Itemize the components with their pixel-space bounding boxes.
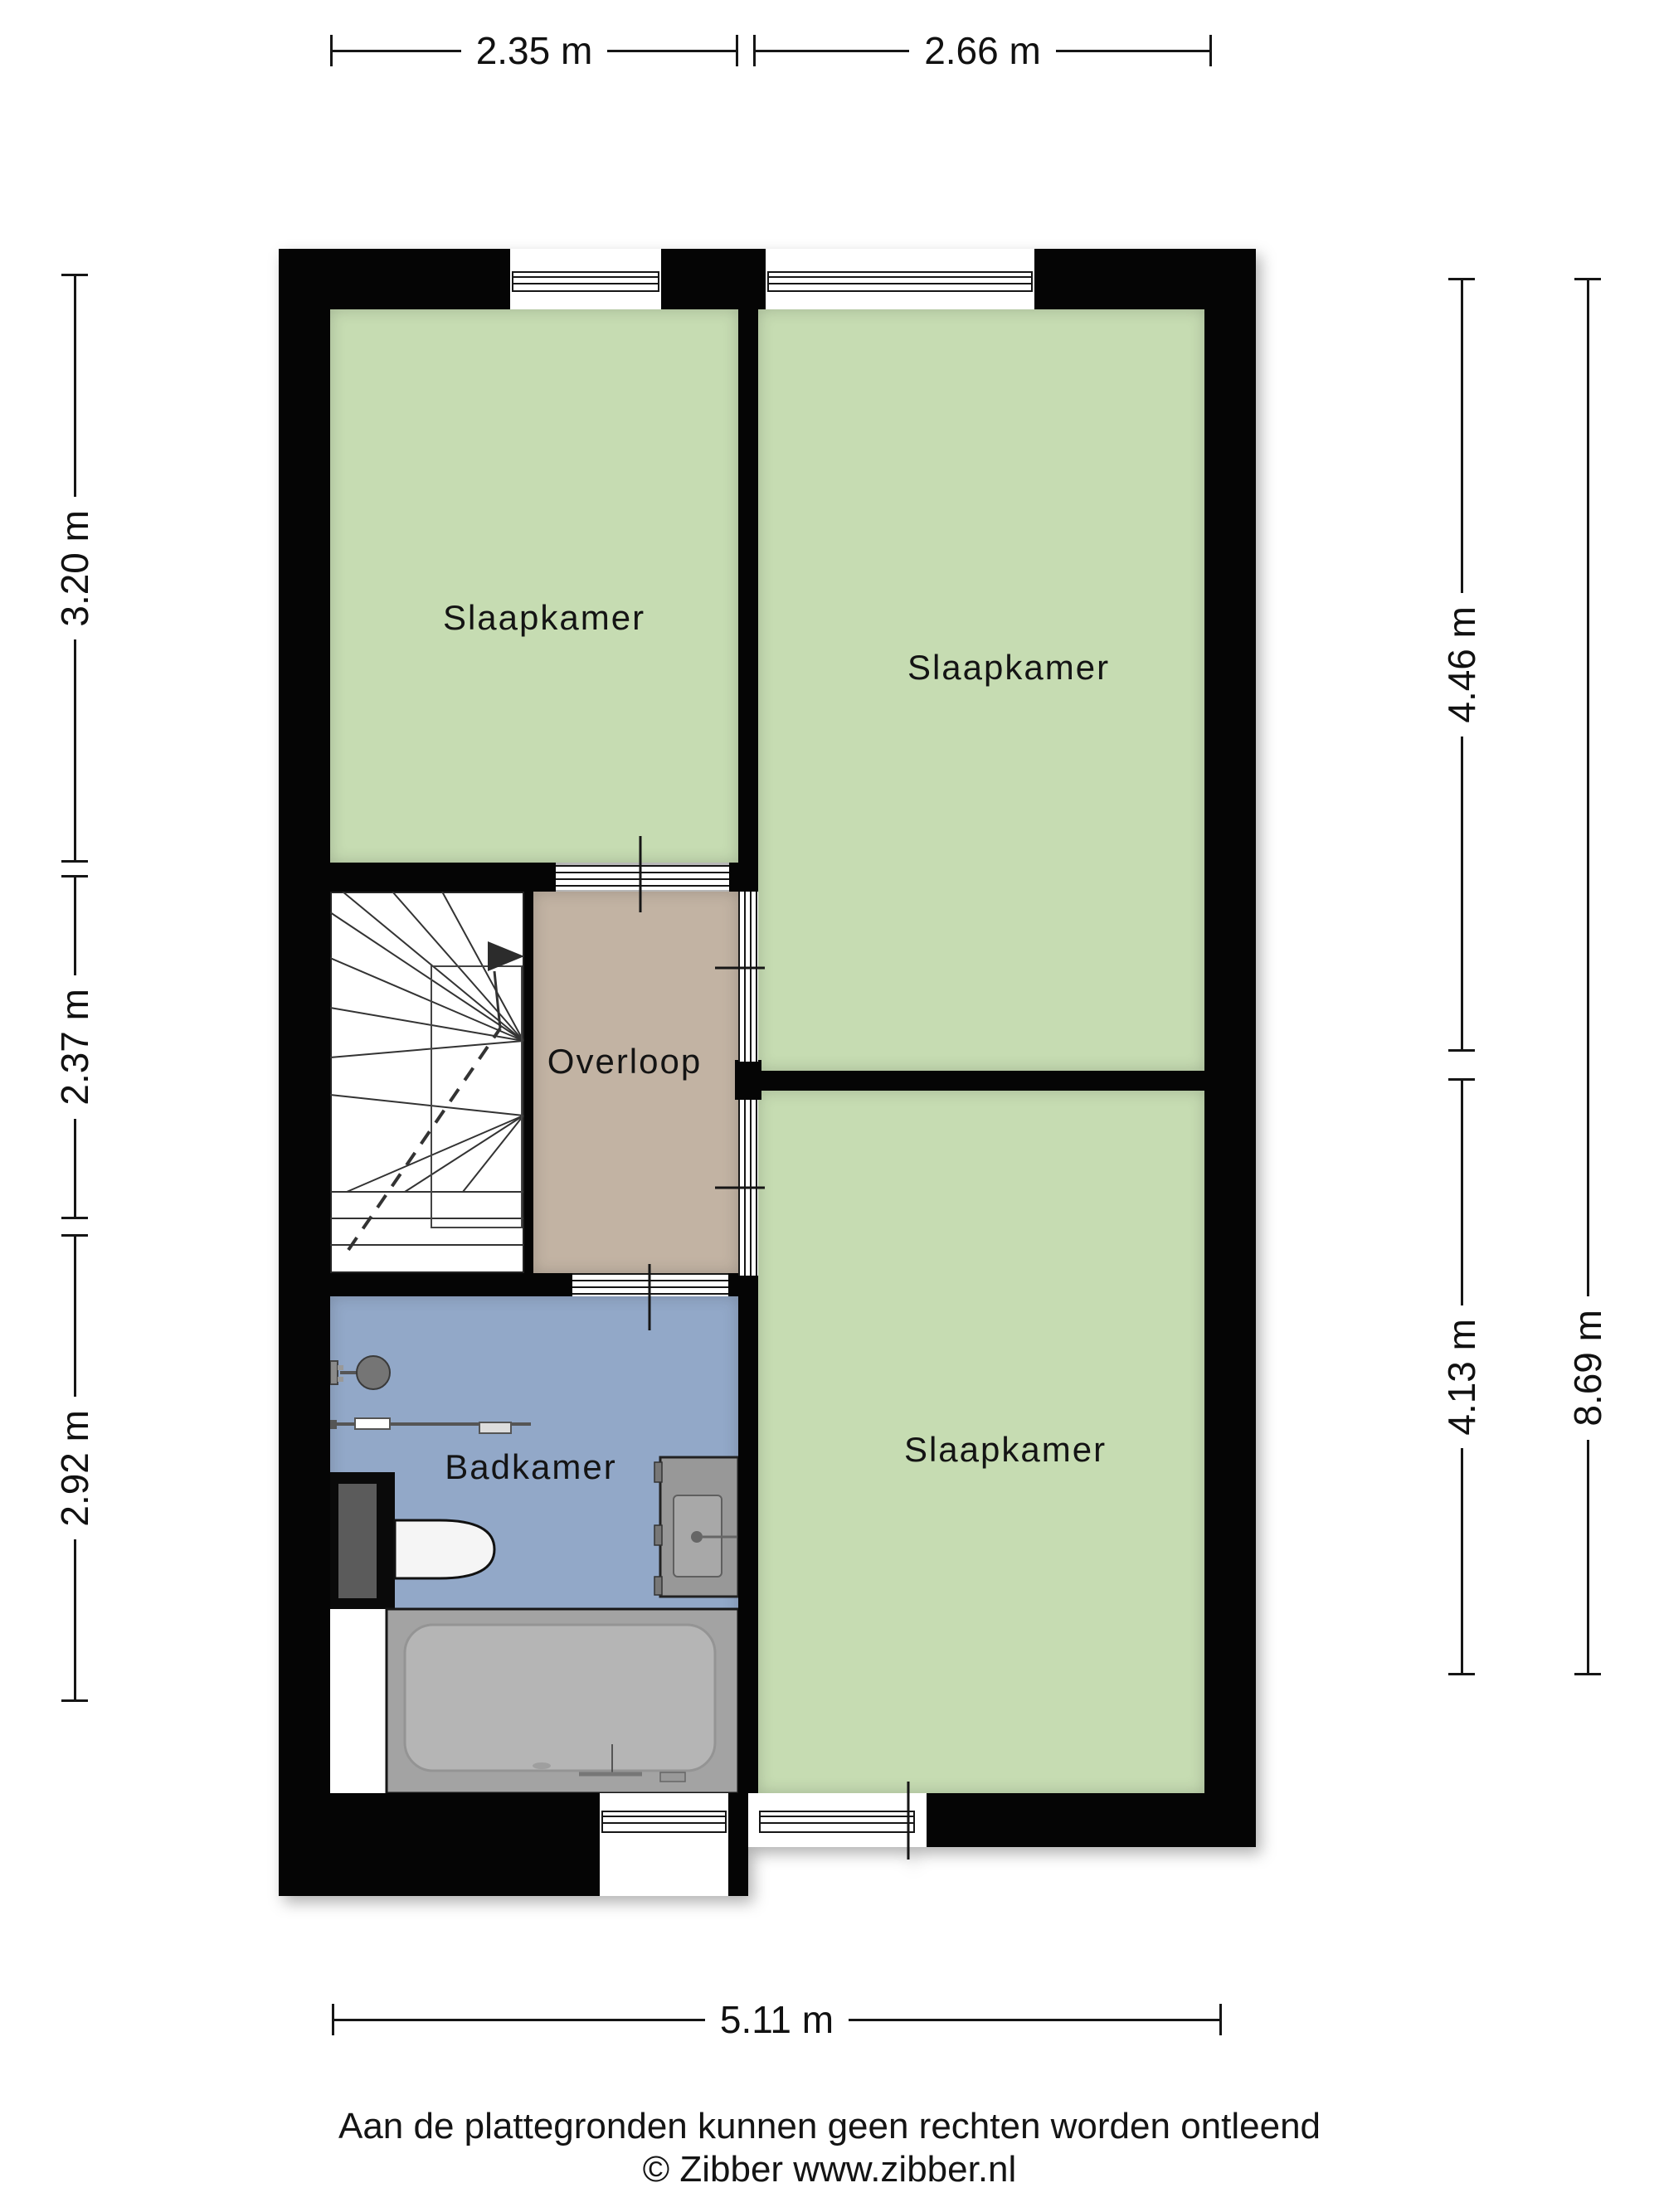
dimension-top-right: 2.66 m — [753, 32, 1212, 70]
dimension-label: 2.37 m — [52, 989, 97, 1106]
room-label-bathroom: Badkamer — [445, 1447, 616, 1487]
dimension-label: 8.69 m — [1565, 1310, 1610, 1427]
dimension-top-left: 2.35 m — [330, 32, 738, 70]
dimension-right-bottom: 4.13 m — [1445, 1078, 1478, 1675]
dimension-label: 2.66 m — [924, 28, 1041, 73]
room-label-bedroom-bottom-right: Slaapkamer — [904, 1430, 1107, 1470]
floor-plan: Slaapkamer Slaapkamer Slaapkamer Overloo… — [0, 0, 1659, 2212]
room-label-landing: Overloop — [547, 1042, 702, 1082]
dimension-left-middle: 2.37 m — [58, 875, 91, 1219]
dimension-label: 4.13 m — [1439, 1319, 1484, 1436]
footer-disclaimer: Aan de plattegronden kunnen geen rechten… — [0, 2105, 1659, 2148]
dimension-left-top: 3.20 m — [58, 274, 91, 863]
room-label-bedroom-top-right: Slaapkamer — [907, 648, 1110, 688]
dimension-right-top: 4.46 m — [1445, 278, 1478, 1052]
dimension-label: 4.46 m — [1439, 606, 1484, 723]
room-label-bedroom-top-left: Slaapkamer — [443, 598, 645, 638]
door-tick-marks — [0, 0, 1659, 2212]
dimension-label: 2.35 m — [476, 28, 593, 73]
dimension-left-bottom: 2.92 m — [58, 1234, 91, 1702]
footer: Aan de plattegronden kunnen geen rechten… — [0, 2105, 1659, 2191]
dimension-right-total: 8.69 m — [1571, 278, 1604, 1675]
dimension-label: 2.92 m — [52, 1410, 97, 1527]
dimension-label: 3.20 m — [52, 510, 97, 627]
dimension-bottom: 5.11 m — [332, 2001, 1222, 2039]
footer-copyright: © Zibber www.zibber.nl — [0, 2148, 1659, 2191]
dimension-label: 5.11 m — [720, 1997, 834, 2042]
